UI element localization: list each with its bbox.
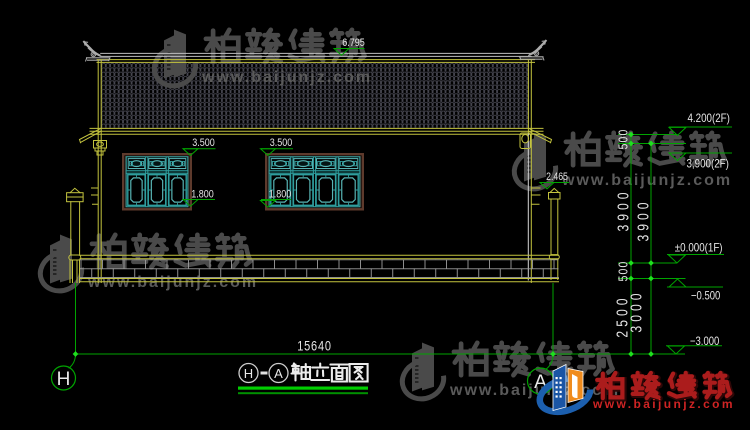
- svg-text:2.465: 2.465: [546, 171, 568, 183]
- svg-text:500: 500: [616, 260, 632, 281]
- svg-text:1.800: 1.800: [191, 189, 214, 201]
- svg-text:6.795: 6.795: [342, 37, 365, 49]
- svg-text:−3.000: −3.000: [690, 335, 719, 348]
- svg-text:www.baijunjz.com: www.baijunjz.com: [561, 172, 732, 189]
- svg-text:15640: 15640: [297, 338, 332, 354]
- svg-text:www.baijunjz.com: www.baijunjz.com: [592, 397, 735, 411]
- svg-text:A: A: [274, 366, 283, 381]
- svg-text:3900: 3900: [614, 188, 632, 231]
- svg-text:1.800: 1.800: [269, 189, 292, 201]
- svg-text:www.baijunjz.com: www.baijunjz.com: [201, 69, 372, 86]
- svg-text:3000: 3000: [627, 289, 645, 332]
- svg-text:H: H: [57, 369, 71, 390]
- svg-text:3.500: 3.500: [192, 137, 215, 149]
- svg-text:3,900(2F): 3,900(2F): [687, 157, 730, 170]
- svg-text:500: 500: [616, 128, 632, 149]
- svg-text:3.500: 3.500: [270, 137, 293, 149]
- svg-text:−0.500: −0.500: [691, 290, 720, 303]
- svg-text:3900: 3900: [634, 198, 652, 241]
- svg-text:±0.000(1F): ±0.000(1F): [675, 241, 723, 254]
- svg-text:4.200(2F): 4.200(2F): [688, 112, 731, 125]
- svg-text:H: H: [244, 366, 253, 381]
